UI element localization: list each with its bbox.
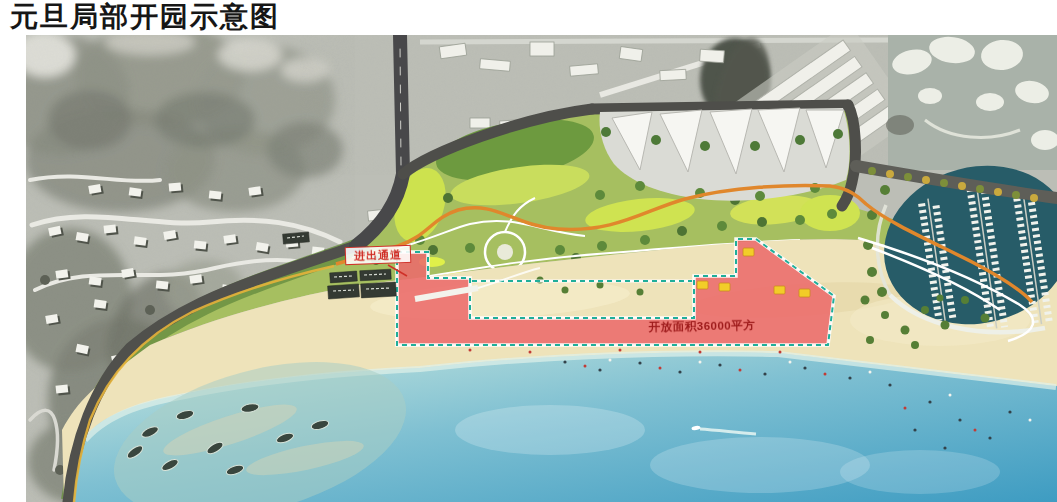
road-name-sign [283,232,310,244]
aerial-map [0,0,1057,502]
park-north-road [592,105,848,109]
left-margin [0,35,26,502]
gray-harbor-area [886,34,1057,170]
entry-exit-label: 进出通道 [345,245,412,265]
page-title: 元旦局部开园示意图 [10,0,710,34]
open-area-label: 开放面积36000平方 [622,318,782,336]
park-opening-diagram: 元旦局部开园示意图 进出通道 开放面积36000平方 [0,0,1057,502]
